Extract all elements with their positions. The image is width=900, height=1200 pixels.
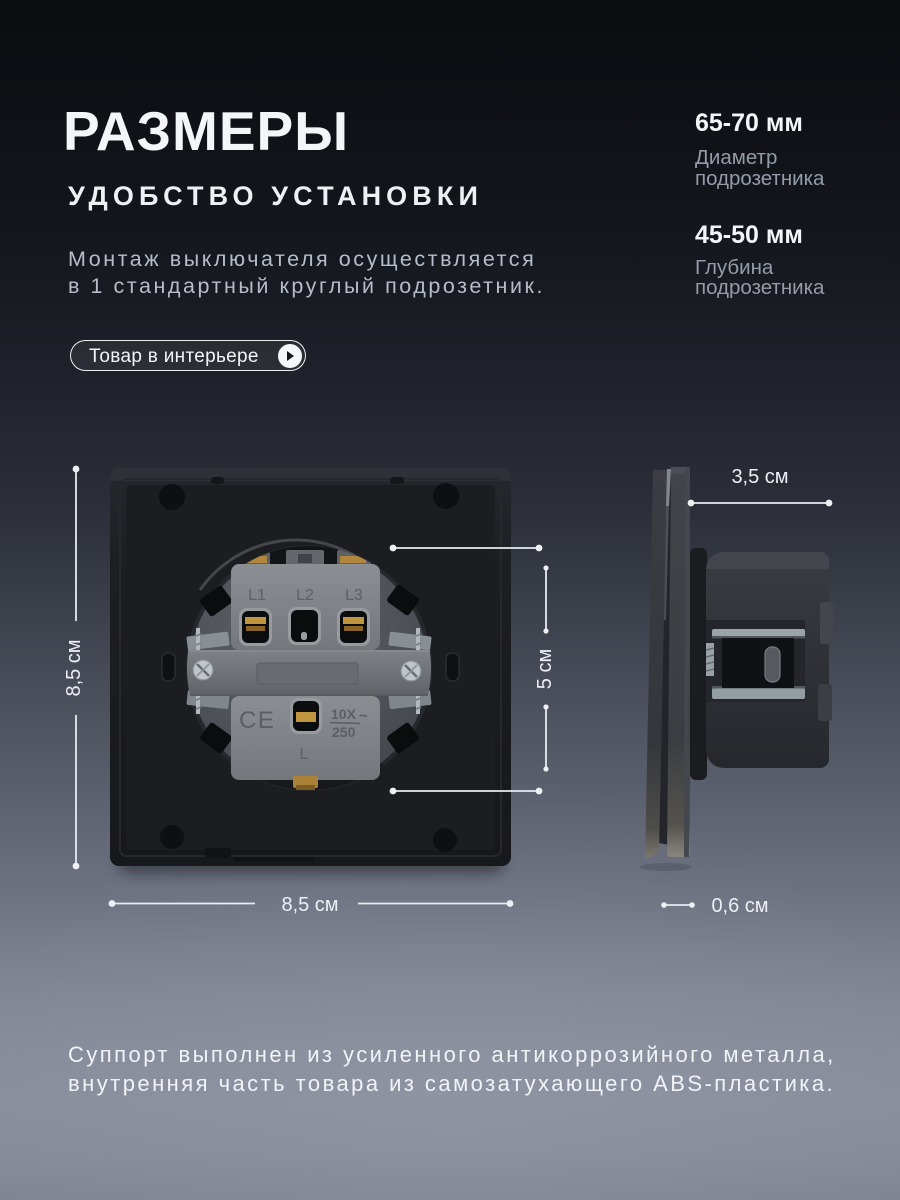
svg-text:0,6 см: 0,6 см <box>711 895 768 917</box>
svg-text:L1: L1 <box>248 587 266 604</box>
svg-text:5 см: 5 см <box>534 649 556 689</box>
svg-text:L2: L2 <box>296 587 314 604</box>
svg-text:3,5 см: 3,5 см <box>731 466 788 488</box>
svg-text:250: 250 <box>332 724 356 740</box>
svg-text:10X: 10X <box>331 706 357 722</box>
svg-text:L3: L3 <box>345 587 363 604</box>
svg-text:~: ~ <box>359 708 368 725</box>
svg-text:8,5 см: 8,5 см <box>281 894 338 916</box>
svg-text:L: L <box>300 746 309 763</box>
svg-text:8,5 см: 8,5 см <box>63 639 85 696</box>
svg-text:CE: CE <box>239 707 275 734</box>
